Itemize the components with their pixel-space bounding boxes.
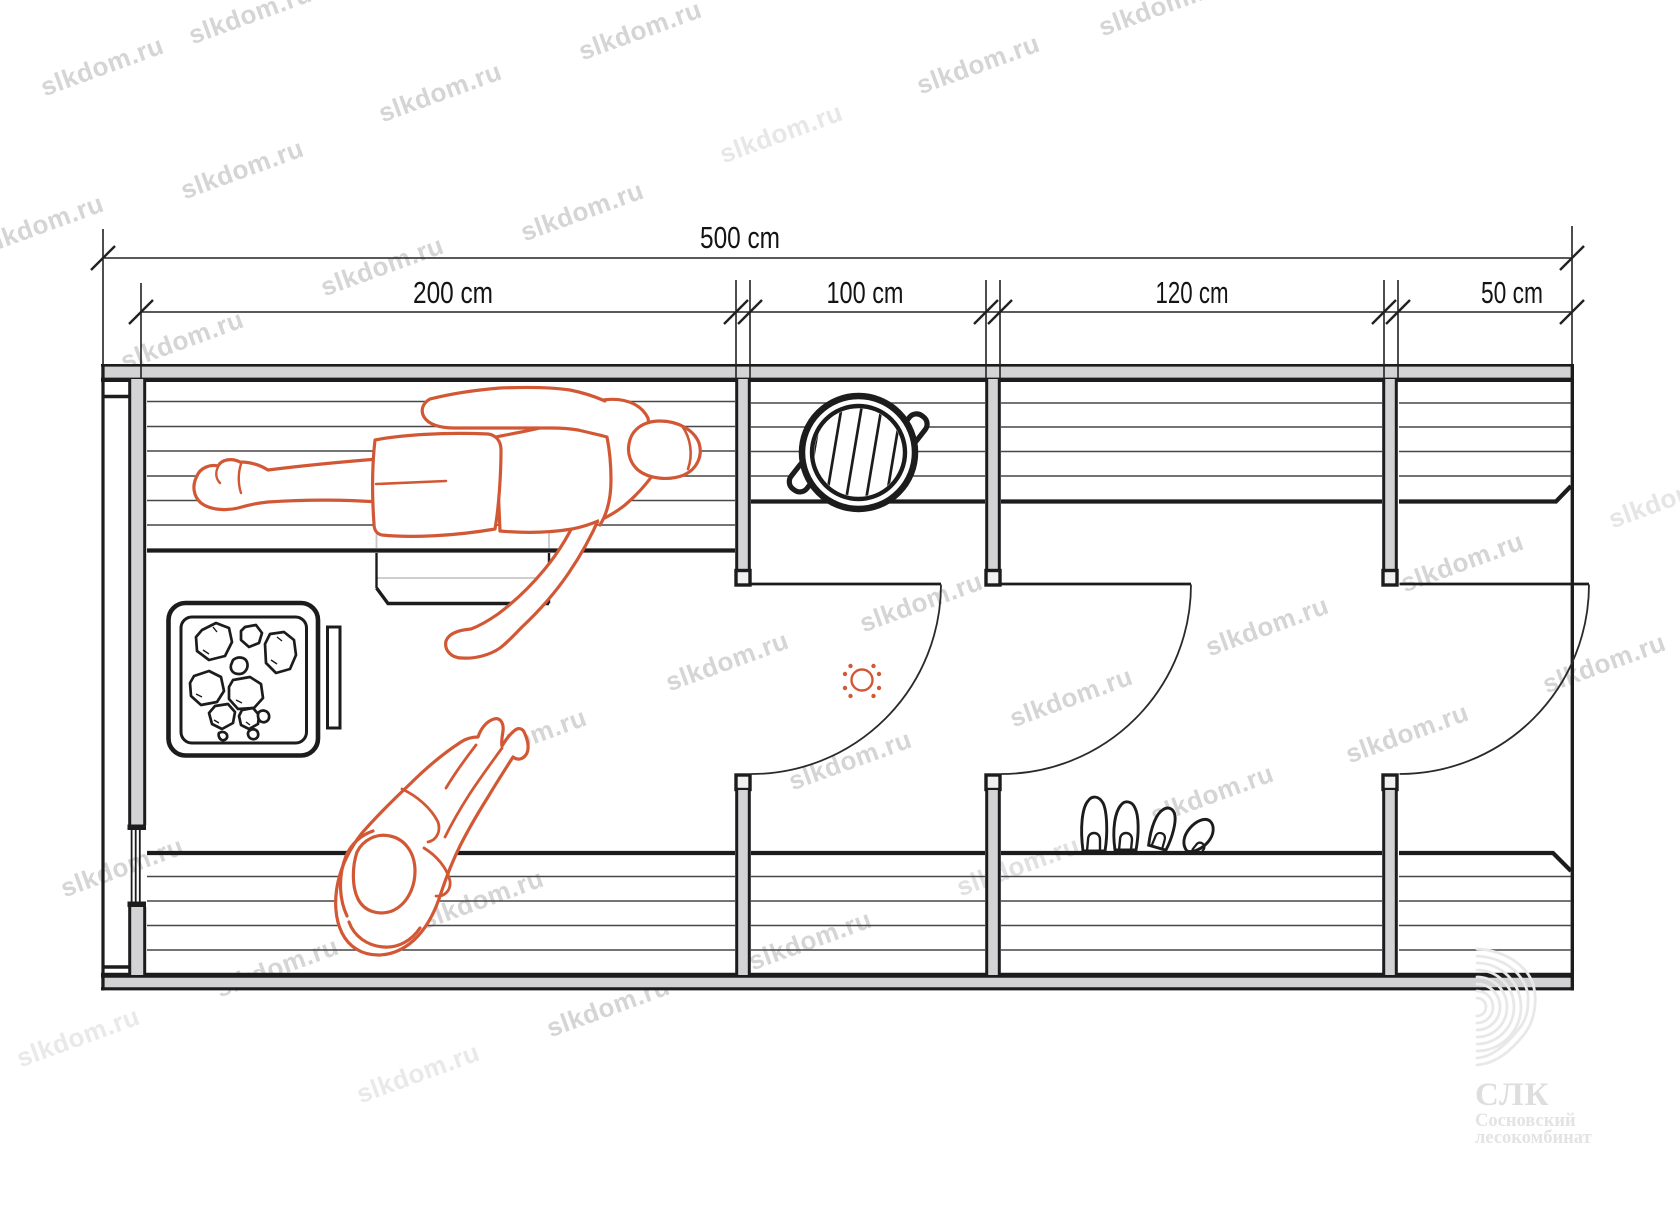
svg-text:СЛК: СЛК	[1475, 1077, 1550, 1113]
svg-text:100 cm: 100 cm	[827, 275, 904, 310]
svg-text:200 cm: 200 cm	[413, 275, 493, 310]
svg-text:120 cm: 120 cm	[1156, 275, 1229, 310]
svg-text:50 cm: 50 cm	[1481, 275, 1543, 310]
svg-text:500 cm: 500 cm	[700, 220, 780, 255]
svg-text:лесокомбинат: лесокомбинат	[1475, 1128, 1592, 1148]
